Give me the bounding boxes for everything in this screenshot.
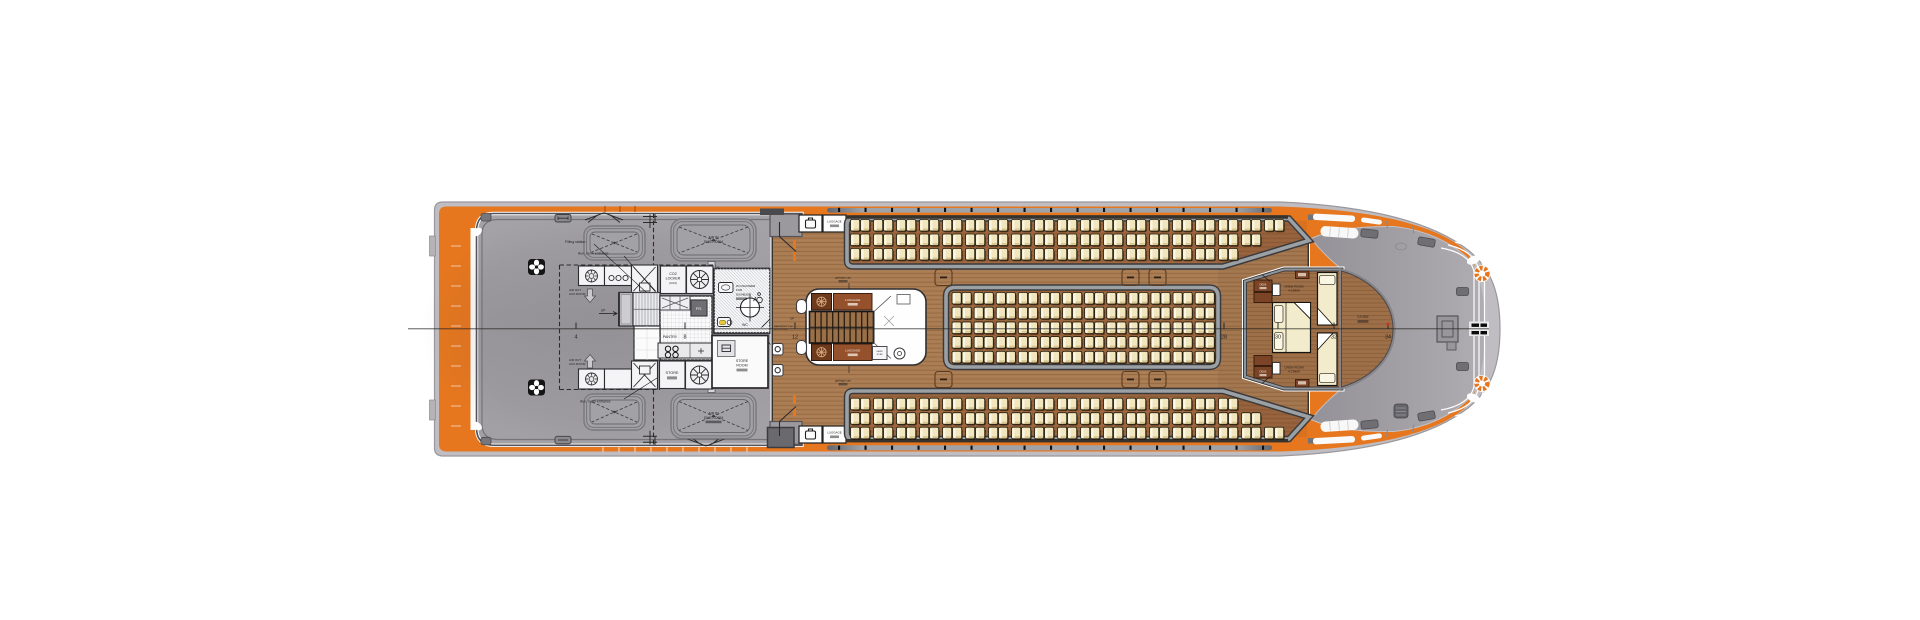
svg-text:(CO2): (CO2) xyxy=(669,281,677,285)
svg-text:4 CREW: 4 CREW xyxy=(1288,289,1300,293)
svg-text:8: 8 xyxy=(684,335,687,341)
svg-text:WC: WC xyxy=(742,323,748,327)
svg-text:AUX.ROOM: AUX.ROOM xyxy=(569,362,586,366)
svg-text:34: 34 xyxy=(1385,335,1391,341)
svg-text:Aux. room entrance: Aux. room entrance xyxy=(578,252,609,256)
svg-text:STORE: STORE xyxy=(736,359,749,363)
svg-text:DISABLED: DISABLED xyxy=(736,292,750,296)
svg-text:DESK: DESK xyxy=(1259,283,1266,287)
svg-text:WARD: WARD xyxy=(877,350,884,353)
svg-text:LUGGAGE: LUGGAGE xyxy=(845,298,860,302)
svg-text:SILL HT 0.5m: SILL HT 0.5m xyxy=(774,329,788,331)
svg-text:LUGGAGE: LUGGAGE xyxy=(827,431,841,435)
svg-text:garbage can: garbage can xyxy=(835,276,851,280)
svg-text:LUGGAGE: LUGGAGE xyxy=(827,220,841,224)
svg-text:MAIN ENTRY 2.5m: MAIN ENTRY 2.5m xyxy=(774,325,793,328)
svg-text:Filling station: Filling station xyxy=(565,240,585,244)
svg-text:ENG.ROOM: ENG.ROOM xyxy=(704,416,723,420)
svg-text:4 CREW: 4 CREW xyxy=(1288,370,1300,374)
svg-text:FR.: FR. xyxy=(696,306,702,311)
svg-text:CO2: CO2 xyxy=(669,272,676,276)
svg-text:Aux. room entrance: Aux. room entrance xyxy=(580,400,611,404)
svg-text:STORE: STORE xyxy=(665,371,678,375)
svg-text:garbage can: garbage can xyxy=(835,379,851,383)
svg-text:AUX.ROOM: AUX.ROOM xyxy=(569,292,586,296)
svg-text:ROOM: ROOM xyxy=(736,364,747,368)
svg-text:12: 12 xyxy=(792,335,798,341)
svg-text:4: 4 xyxy=(575,335,578,341)
svg-text:32: 32 xyxy=(1331,335,1337,341)
svg-text:ENG.ROOM: ENG.ROOM xyxy=(704,240,723,244)
svg-text:PANTRY: PANTRY xyxy=(663,335,678,339)
svg-text:STORE: STORE xyxy=(1357,315,1369,319)
svg-text:DESK: DESK xyxy=(1259,370,1266,374)
svg-text:30: 30 xyxy=(1275,335,1281,341)
svg-text:LUGGAGE: LUGGAGE xyxy=(845,348,860,352)
svg-text:UP: UP xyxy=(601,309,605,313)
svg-text:28: 28 xyxy=(1221,335,1227,341)
svg-text:UP: UP xyxy=(790,317,794,321)
svg-text:ROBE: ROBE xyxy=(877,354,884,356)
svg-text:LOCKER: LOCKER xyxy=(666,277,681,281)
